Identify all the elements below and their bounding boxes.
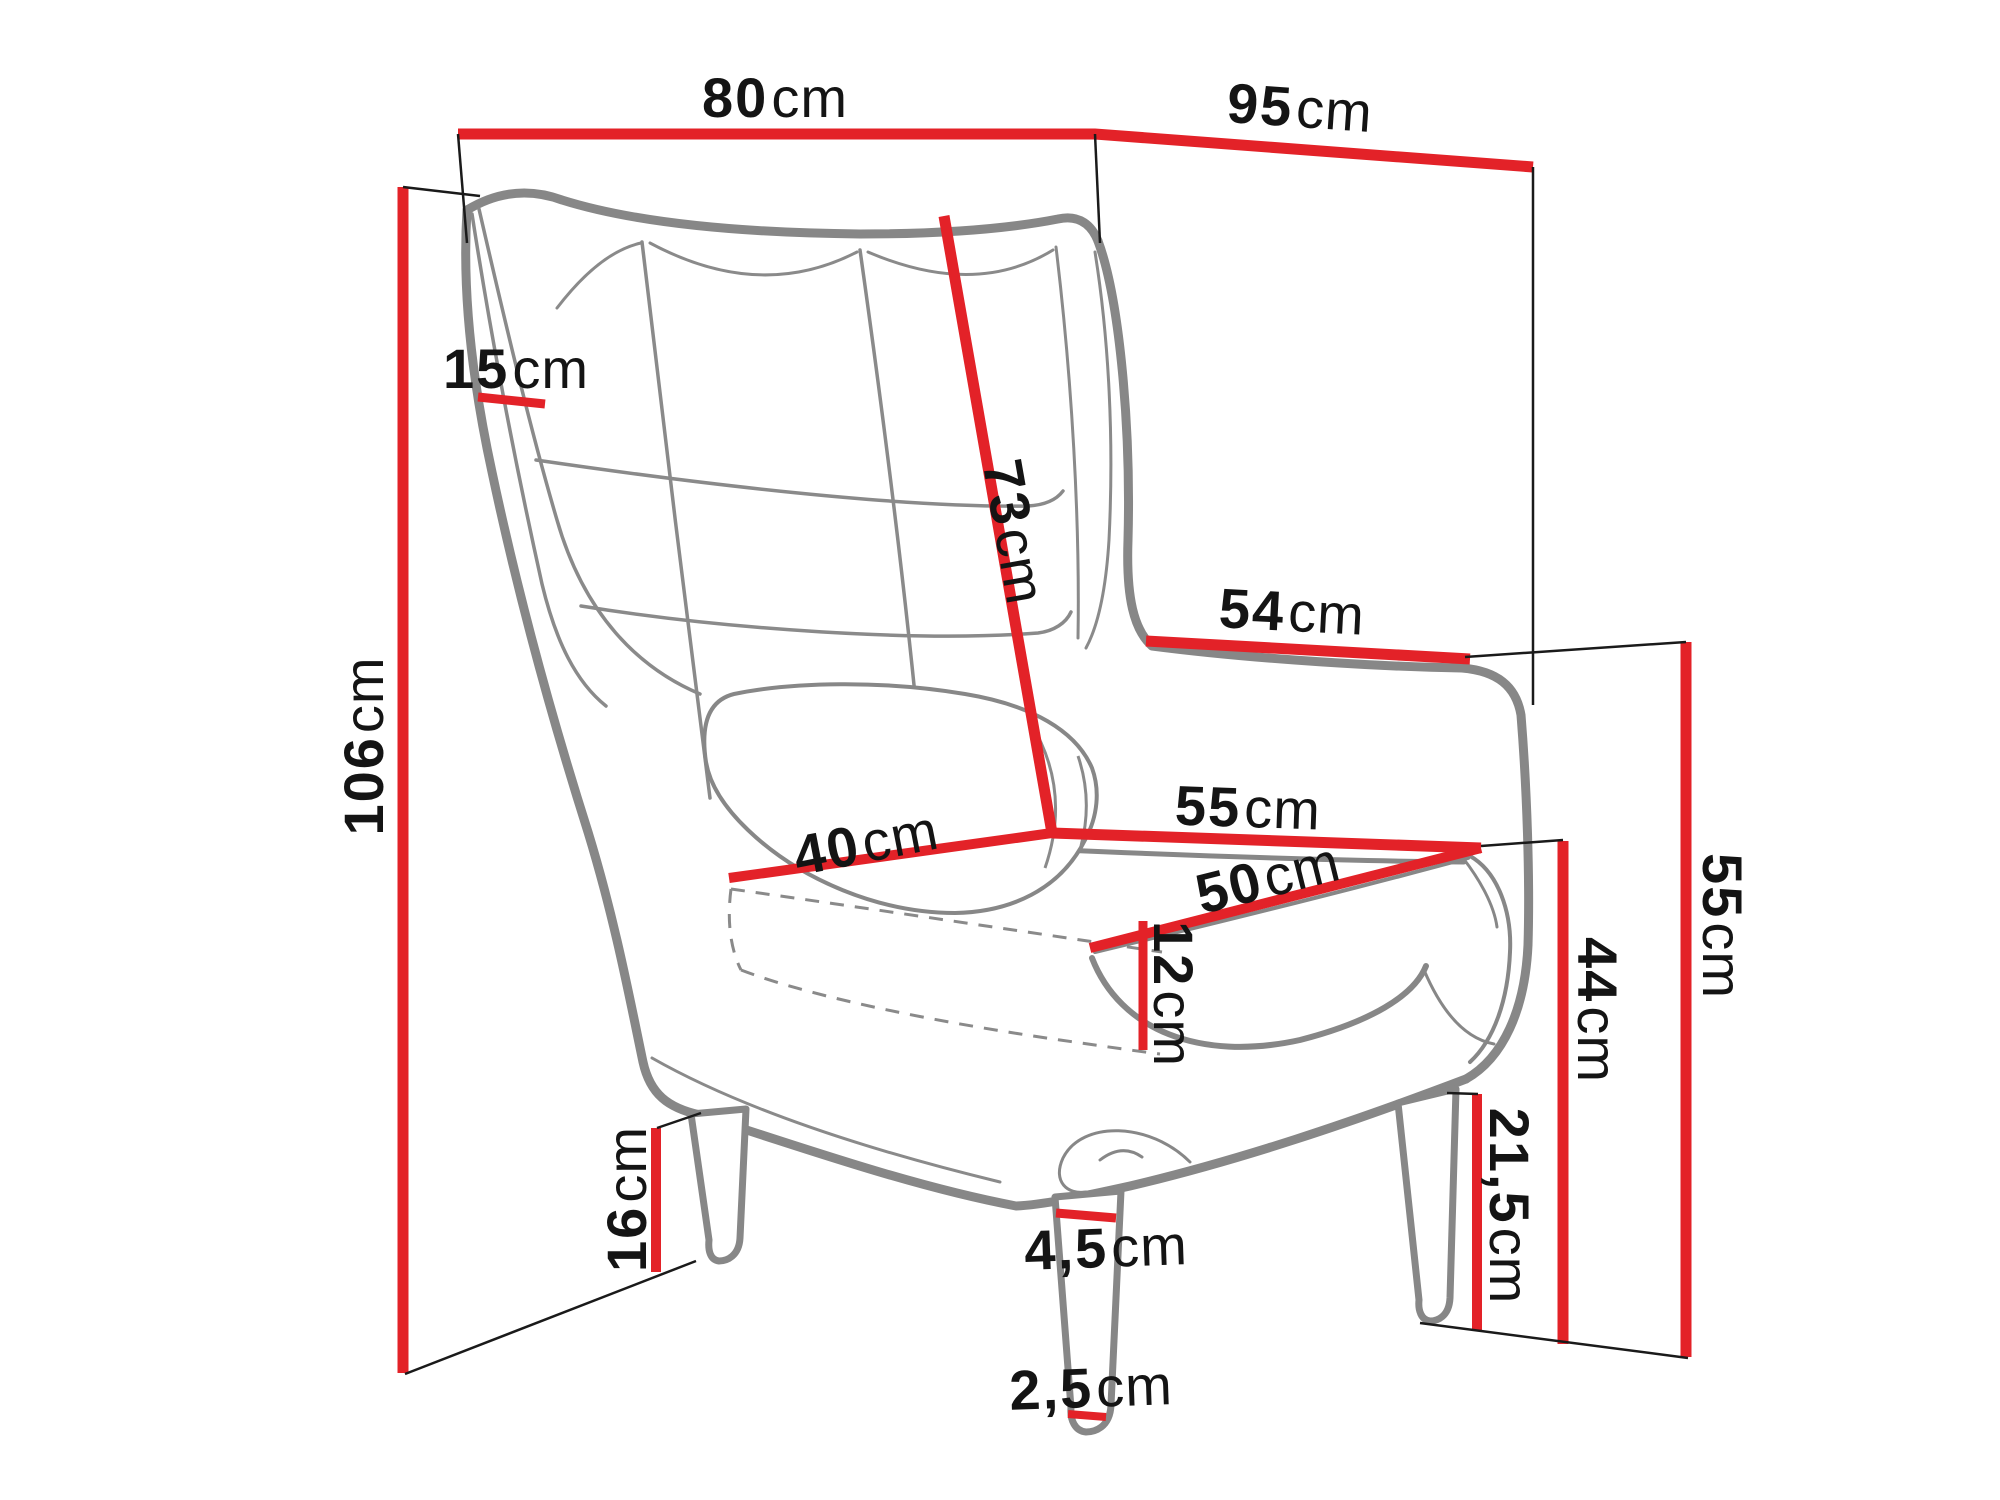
dimension-unit: cm xyxy=(1478,1228,1541,1305)
pillow-outline xyxy=(704,684,1096,913)
dimension-label-seat-height: 44cm xyxy=(1569,937,1625,1083)
ext-80-95-corner xyxy=(1095,134,1100,243)
dimension-value: 4,5 xyxy=(1023,1216,1109,1282)
dimension-unit: cm xyxy=(1566,1006,1629,1083)
dimension-value: 73 xyxy=(971,455,1045,531)
horizontal-seam-2 xyxy=(581,606,1071,636)
dimension-unit: cm xyxy=(983,523,1058,609)
dim-line-80-95 xyxy=(458,134,1533,167)
dimension-value: 80 xyxy=(702,66,768,129)
dimension-label-seat-cushion-thickness: 12cm xyxy=(1145,921,1201,1067)
ext-floor-right xyxy=(1420,1323,1688,1358)
front-gather-swirl-inner xyxy=(1100,1151,1142,1160)
dashed-left-edge xyxy=(729,889,741,970)
skirt-bottom-edge xyxy=(700,1079,1466,1206)
dashed-bottom-edge xyxy=(741,970,1160,1054)
ext-arm-to-44 xyxy=(1481,840,1563,846)
dimension-unit: cm xyxy=(595,1126,658,1203)
dimension-value: 15 xyxy=(443,337,509,400)
armchair-line-drawing xyxy=(0,0,2000,1500)
dimension-value: 95 xyxy=(1225,71,1296,138)
dimension-label-wing-depth: 15cm xyxy=(443,341,589,397)
top-tuft-sag-1 xyxy=(557,243,641,308)
dimension-value: 2,5 xyxy=(1008,1356,1094,1422)
dimension-label-total-depth: 95cm xyxy=(1225,75,1375,141)
lumbar-pillow xyxy=(704,684,1096,913)
dimension-unit: cm xyxy=(1142,990,1205,1067)
dimension-label-armrest-length: 54cm xyxy=(1218,580,1367,644)
dimension-value: 54 xyxy=(1218,576,1288,642)
dimension-value: 16 xyxy=(595,1206,658,1272)
dimension-unit: cm xyxy=(1691,922,1754,999)
dimension-unit: cm xyxy=(1095,1353,1174,1419)
dimension-unit: cm xyxy=(512,337,589,400)
dimension-label-total-height: 106cm xyxy=(336,656,392,835)
dimension-unit: cm xyxy=(1110,1213,1189,1279)
ext-floor-left xyxy=(405,1261,696,1374)
right-wing-inner-edge xyxy=(1086,252,1111,648)
dimension-unit: cm xyxy=(332,656,395,733)
top-tuft-sag-2 xyxy=(650,243,857,275)
dimension-unit: cm xyxy=(1294,76,1375,144)
dimension-label-armrest-height: 55cm xyxy=(1694,853,1750,999)
dimension-value: 55 xyxy=(1691,853,1754,919)
dimension-label-rear-leg-height: 16cm xyxy=(599,1126,655,1272)
dimension-unit: cm xyxy=(771,66,848,129)
dimension-value: 106 xyxy=(332,736,395,835)
front-right-leg xyxy=(1398,1089,1456,1321)
dimension-label-front-leg-bottom-width: 2,5cm xyxy=(1008,1357,1173,1419)
dimension-value: 12 xyxy=(1142,921,1205,987)
dimension-value: 44 xyxy=(1566,937,1629,1003)
backrest-top-edge xyxy=(467,193,1098,241)
ext-54-to-55 xyxy=(1465,642,1686,657)
top-tuft-sag-3 xyxy=(868,250,1053,275)
dimension-diagram-canvas: 80cm 95cm 15cm 106cm 73cm 54cm 55cm 40cm… xyxy=(0,0,2000,1500)
dimension-value: 55 xyxy=(1174,773,1242,838)
ext-21-5-top xyxy=(1447,1093,1478,1094)
dimension-label-back-width-top: 80cm xyxy=(702,70,848,126)
dimension-label-seat-width-back: 55cm xyxy=(1174,777,1322,838)
vertical-seam-3 xyxy=(1056,247,1078,638)
dimension-unit: cm xyxy=(1287,580,1367,647)
dimension-label-under-seat-clearance: 21,5cm xyxy=(1481,1108,1537,1305)
arm-front-inner-arc xyxy=(1463,858,1497,927)
ext-106-top xyxy=(403,187,480,196)
dimension-label-front-leg-top-width: 4,5cm xyxy=(1023,1217,1188,1279)
dimension-value: 40 xyxy=(788,813,865,887)
arm-front-sag xyxy=(1424,970,1494,1044)
dimension-value: 21,5 xyxy=(1478,1108,1541,1225)
vertical-seam-1 xyxy=(642,242,710,798)
rear-left-leg xyxy=(691,1109,746,1261)
dimension-unit: cm xyxy=(1243,776,1322,842)
